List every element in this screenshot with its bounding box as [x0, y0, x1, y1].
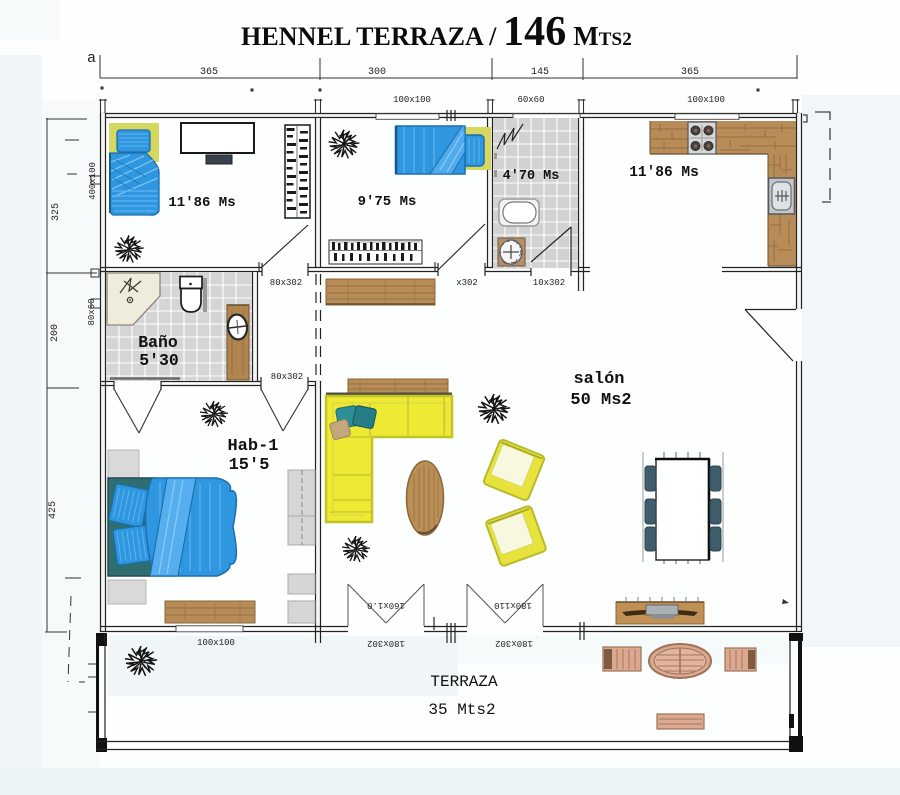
svg-text:5'30: 5'30 — [139, 351, 179, 370]
svg-text:60x60: 60x60 — [517, 95, 544, 105]
svg-text:80x60: 80x60 — [87, 298, 97, 325]
svg-text:100x100: 100x100 — [393, 95, 431, 105]
svg-text:180x302: 180x302 — [367, 638, 405, 648]
svg-text:11'86 Ms: 11'86 Ms — [168, 195, 235, 211]
svg-text:145: 145 — [531, 67, 549, 78]
svg-text:15'5: 15'5 — [229, 456, 270, 475]
svg-text:salón: salón — [573, 370, 624, 389]
svg-text:x302: x302 — [456, 278, 478, 288]
svg-text:9'75 Ms: 9'75 Ms — [358, 194, 417, 210]
svg-text:a: a — [87, 50, 96, 67]
svg-text:425: 425 — [48, 501, 59, 519]
svg-text:180x302: 180x302 — [495, 638, 533, 648]
svg-text:200: 200 — [50, 324, 61, 342]
svg-text:365: 365 — [200, 67, 218, 78]
svg-text:4'70 Ms: 4'70 Ms — [503, 169, 560, 184]
svg-text:10x302: 10x302 — [533, 278, 565, 288]
svg-text:365: 365 — [681, 67, 699, 78]
svg-text:Hab-1: Hab-1 — [227, 437, 278, 456]
svg-text:TERRAZA: TERRAZA — [430, 673, 498, 691]
svg-text:35 Mts2: 35 Mts2 — [428, 701, 495, 719]
svg-text:160x1.0: 160x1.0 — [367, 600, 405, 610]
svg-text:300: 300 — [368, 67, 386, 78]
svg-text:11'86 Ms: 11'86 Ms — [629, 165, 699, 181]
svg-text:50 Ms2: 50 Ms2 — [570, 391, 631, 410]
svg-text:Baño: Baño — [138, 333, 178, 352]
svg-text:325: 325 — [51, 203, 62, 221]
svg-text:100x100: 100x100 — [197, 638, 235, 648]
svg-text:400x100: 400x100 — [88, 162, 98, 200]
svg-text:80x302: 80x302 — [271, 372, 303, 382]
svg-text:80x302: 80x302 — [270, 278, 302, 288]
svg-text:180x110: 180x110 — [494, 600, 532, 610]
svg-text:100x100: 100x100 — [687, 95, 725, 105]
